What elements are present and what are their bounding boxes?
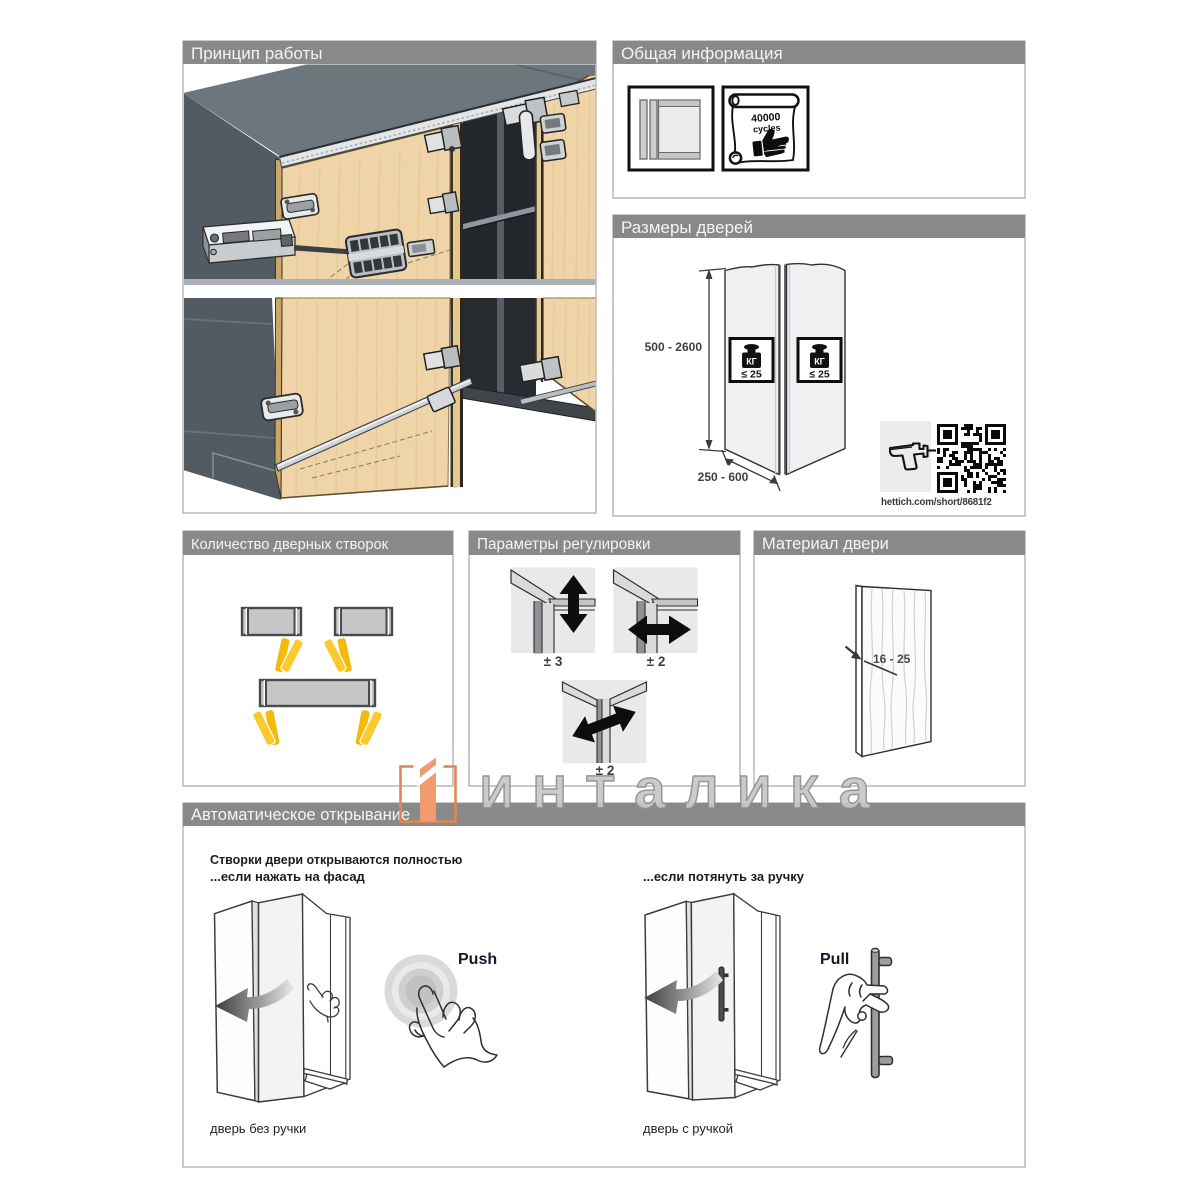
svg-text:Створки двери открываются полн: Створки двери открываются полностью [210,853,463,867]
svg-text:Автоматическое открывание: Автоматическое открывание [191,806,410,824]
svg-text:ИНТаЛИКа: ИНТаЛИКа [480,757,890,820]
svg-text:...если потянуть за ручку: ...если потянуть за ручку [643,869,805,884]
svg-text:дверь без ручки: дверь без ручки [210,1121,306,1136]
svg-text:КГ: КГ [814,357,825,367]
svg-text:16 - 25: 16 - 25 [873,652,911,666]
svg-text:Параметры регулировки: Параметры регулировки [477,536,651,553]
svg-text:Общая информация: Общая информация [621,44,783,63]
svg-text:дверь с ручкой: дверь с ручкой [643,1121,733,1136]
svg-text:Материал двери: Материал двери [762,535,889,553]
svg-text:± 3: ± 3 [544,654,563,669]
svg-text:± 2: ± 2 [647,654,666,669]
svg-text:...если нажать на фасад: ...если нажать на фасад [210,869,366,884]
svg-text:Принцип работы: Принцип работы [191,44,322,63]
svg-text:Количество дверных створок: Количество дверных створок [191,537,389,553]
svg-text:250 - 600: 250 - 600 [698,470,749,484]
svg-text:Push: Push [458,951,497,968]
svg-text:hettich.com/short/8681f2: hettich.com/short/8681f2 [881,497,992,508]
svg-text:КГ: КГ [746,357,757,367]
svg-text:500 - 2600: 500 - 2600 [645,340,703,354]
svg-text:Размеры дверей: Размеры дверей [621,218,753,237]
svg-text:≤ 25: ≤ 25 [809,369,830,381]
svg-text:≤ 25: ≤ 25 [741,369,762,381]
svg-text:Pull: Pull [820,951,849,968]
